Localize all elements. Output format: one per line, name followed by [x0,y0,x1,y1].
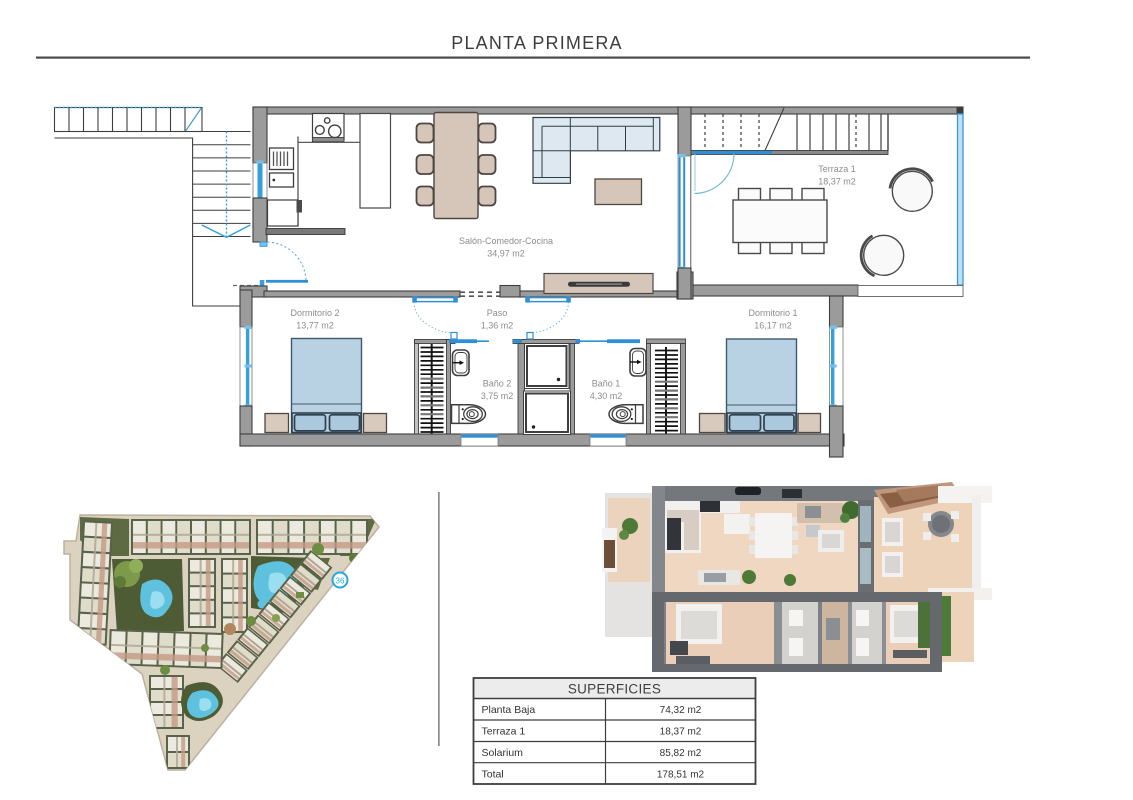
svg-text:18,37 m2: 18,37 m2 [660,727,702,738]
svg-text:Terraza 1: Terraza 1 [482,726,526,738]
svg-text:Terraza 1: Terraza 1 [818,164,856,174]
svg-text:Baño 2: Baño 2 [483,379,512,389]
svg-text:PLANTA PRIMERA: PLANTA PRIMERA [451,33,623,53]
svg-text:3,75 m2: 3,75 m2 [481,391,514,401]
svg-text:Baño 1: Baño 1 [592,379,621,389]
svg-text:Dormitorio 1: Dormitorio 1 [748,308,797,318]
svg-text:Salón-Comedor-Cocina: Salón-Comedor-Cocina [459,236,553,246]
svg-text:SUPERFICIES: SUPERFICIES [568,682,661,697]
svg-text:34,97 m2: 34,97 m2 [487,248,525,258]
svg-text:Planta Baja: Planta Baja [482,704,536,716]
svg-text:1,36 m2: 1,36 m2 [481,321,514,331]
svg-text:Solarium: Solarium [482,747,524,759]
svg-text:13,77 m2: 13,77 m2 [296,321,334,331]
svg-text:Total: Total [482,769,504,781]
svg-text:Dormitorio 2: Dormitorio 2 [290,308,339,318]
svg-text:74,32 m2: 74,32 m2 [660,705,702,716]
svg-text:16,17 m2: 16,17 m2 [754,321,792,331]
svg-text:178,51 m2: 178,51 m2 [657,770,705,781]
svg-text:18,37 m2: 18,37 m2 [818,177,856,187]
svg-text:4,30 m2: 4,30 m2 [590,391,623,401]
svg-text:85,82 m2: 85,82 m2 [660,748,702,759]
svg-text:36: 36 [336,577,345,586]
svg-text:Paso: Paso [487,308,508,318]
